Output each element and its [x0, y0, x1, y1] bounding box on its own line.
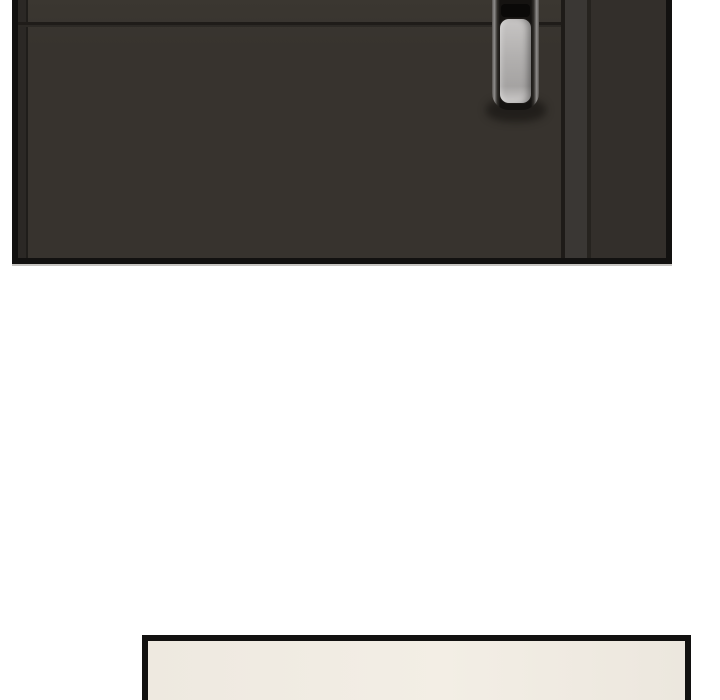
handle-grip: [500, 19, 531, 103]
door-handle: [492, 0, 539, 110]
handle-recess: [501, 4, 530, 17]
comic-page-background: [0, 0, 720, 700]
door-panel-seam: [18, 22, 561, 25]
door-panel: [12, 0, 672, 264]
door-face: [18, 0, 561, 258]
door-jamb: [565, 0, 587, 258]
door-jamb-seam: [587, 0, 591, 258]
door-scene: [18, 0, 666, 258]
door-hinge-edge: [18, 0, 28, 258]
bottom-panel: [142, 635, 691, 700]
